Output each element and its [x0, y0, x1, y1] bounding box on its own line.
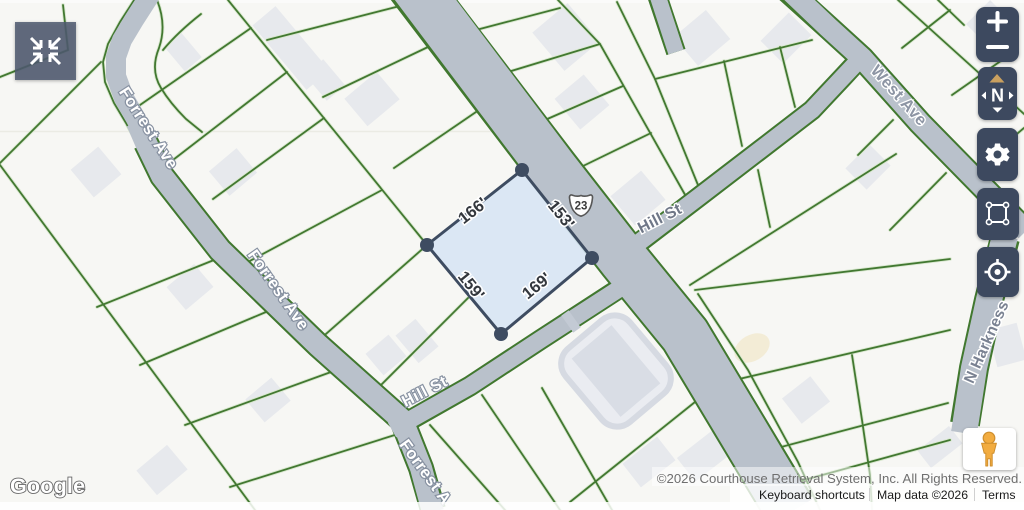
svg-text:Map data ©2026: Map data ©2026: [877, 488, 968, 502]
svg-text:©2026 Courthouse Retrieval Sys: ©2026 Courthouse Retrieval System, Inc. …: [657, 471, 1022, 486]
svg-text:Terms: Terms: [982, 488, 1015, 502]
svg-text:Google: Google: [10, 474, 85, 498]
svg-text:23: 23: [575, 200, 588, 212]
svg-text:N: N: [991, 86, 1004, 106]
svg-text:Keyboard shortcuts: Keyboard shortcuts: [759, 488, 865, 502]
